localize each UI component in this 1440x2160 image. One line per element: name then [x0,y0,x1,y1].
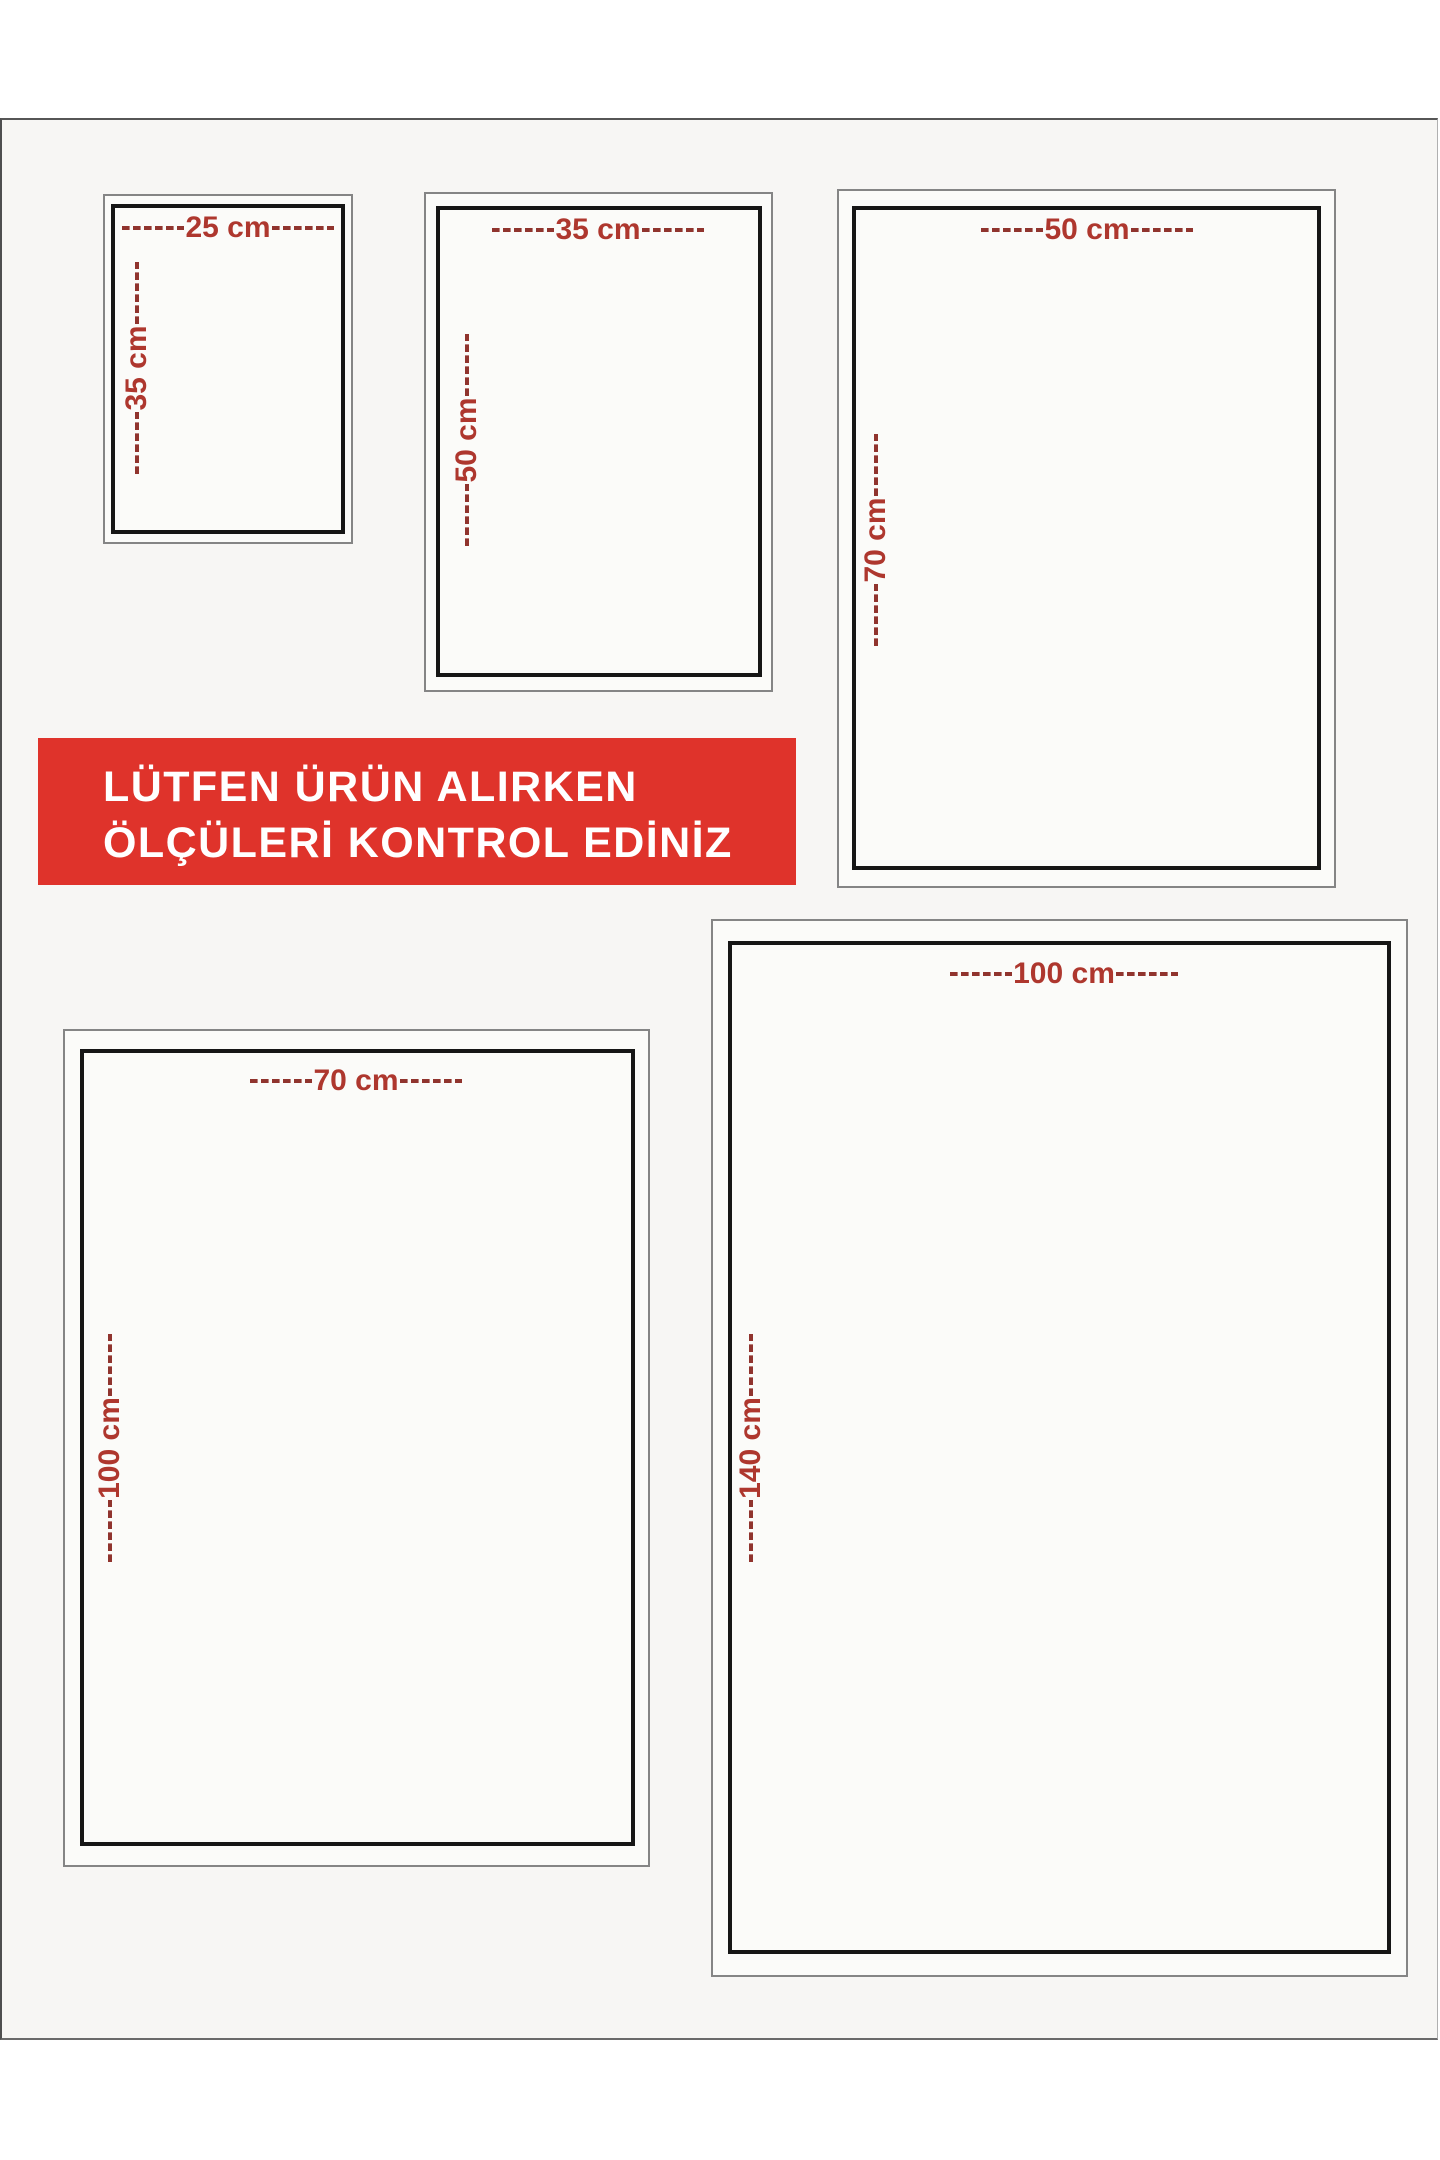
svg-text:50 cm: 50 cm [450,397,483,482]
svg-text:140 cm: 140 cm [734,1397,767,1499]
svg-text:70 cm: 70 cm [859,497,892,582]
svg-text:70 cm: 70 cm [313,1064,398,1097]
svg-text:50 cm: 50 cm [1044,213,1129,246]
svg-text:100 cm: 100 cm [93,1397,126,1499]
svg-text:35 cm: 35 cm [120,325,153,410]
svg-text:35 cm: 35 cm [555,213,640,246]
svg-text:100 cm: 100 cm [1013,957,1115,990]
svg-text:25 cm: 25 cm [185,211,270,244]
